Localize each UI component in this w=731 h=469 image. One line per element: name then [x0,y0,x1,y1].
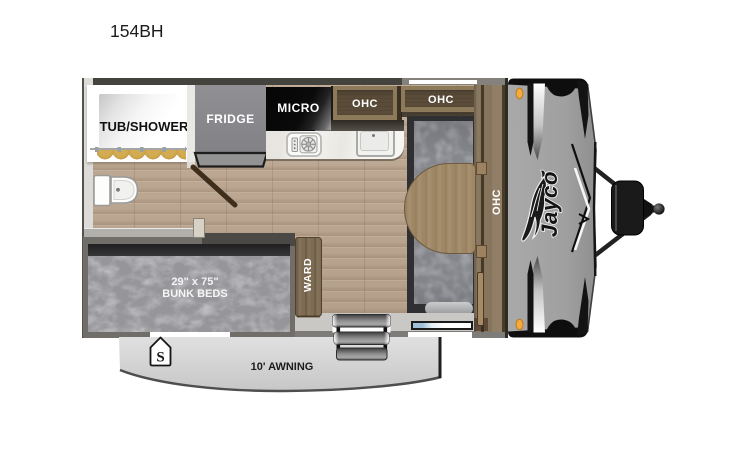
svg-text:Jayco: Jayco [537,171,562,237]
svg-text:S: S [156,350,164,366]
